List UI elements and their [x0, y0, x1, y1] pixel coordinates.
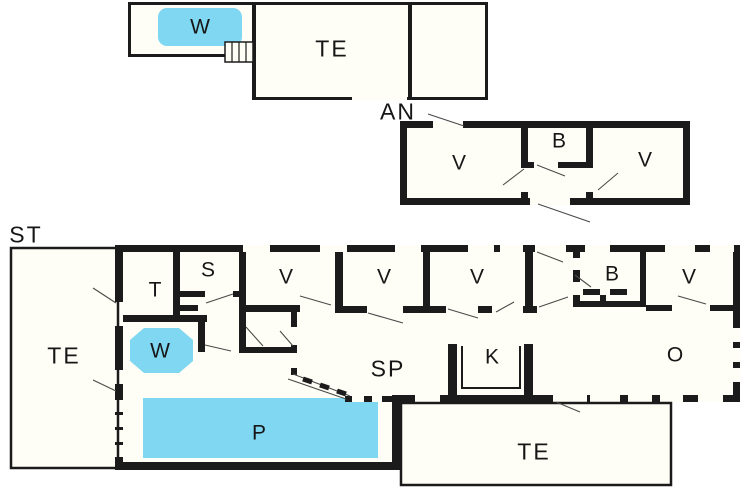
- room-label-whirlpool: W: [150, 341, 170, 362]
- room-label-terrace-left: TE: [47, 345, 80, 368]
- room-label-bedroom-3: V: [470, 267, 484, 288]
- floor-plan-drawing: [0, 0, 750, 500]
- room-label-sauna: S: [201, 260, 215, 281]
- room-label-annex-bath: B: [552, 131, 566, 152]
- floor-plan-canvas: W TE AN V B V ST TE T S V V V B V W SP K…: [0, 0, 750, 500]
- room-label-toilet: T: [149, 280, 162, 301]
- room-label-pool: P: [252, 423, 266, 444]
- room-label-kitchen: K: [485, 347, 499, 368]
- room-label-annex-bedroom-1: V: [452, 153, 466, 174]
- building-label-main-house: ST: [9, 224, 42, 247]
- room-label-whirlpool-top: W: [190, 17, 210, 38]
- room-label-terrace-bottom: TE: [517, 441, 550, 464]
- building-label-annex: AN: [380, 101, 416, 124]
- room-label-bedroom-4: V: [682, 267, 696, 288]
- room-label-games-room: SP: [371, 358, 406, 381]
- stairs: [225, 42, 253, 62]
- room-label-bedroom-2: V: [377, 267, 391, 288]
- room-label-annex-bedroom-2: V: [638, 150, 652, 171]
- room-label-lounge: O: [667, 345, 683, 366]
- room-label-terrace-top: TE: [315, 38, 348, 61]
- room-label-bedroom-1: V: [279, 267, 293, 288]
- room-label-bath: B: [605, 264, 619, 285]
